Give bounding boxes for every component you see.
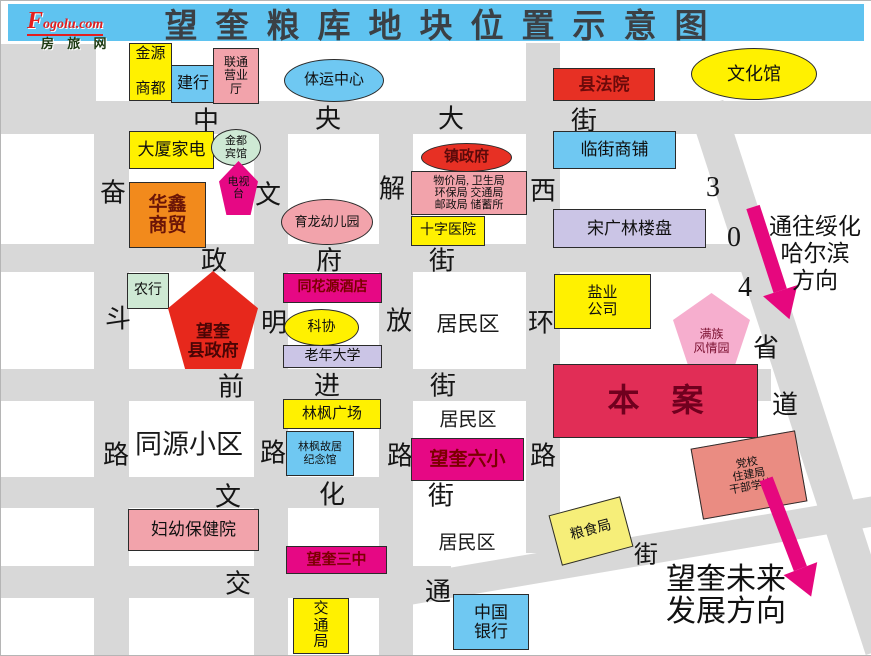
block-liantong-yingyeting: 联通营业厅 [213,48,259,104]
street-name-char: 解 [379,169,405,206]
block-label: 同花源酒店 [298,280,368,296]
block-label: 公司 [587,302,617,319]
street-name-char: 化 [319,475,345,512]
page-title: 望奎粮库地块位置示意图 [147,0,726,47]
street-name-char: 3 [706,172,720,204]
block-label: 金都 [225,135,247,147]
block-label: 望奎 [196,322,230,341]
map-canvas: 望奎粮库地块位置示意图 Fogolu.com 房 旅 网 中央大街政府街前进街文… [0,0,871,656]
annotation-line: 哈尔滨 [759,240,871,267]
block-label: 联通 [224,56,248,69]
block-wenhuaguan: 文化馆 [691,48,817,100]
block-label: 满族 [699,328,723,341]
block-label: 中国 [474,603,508,622]
block-wangkui-xianzhengfu: 望奎县政府 [168,271,258,369]
block-zhongguo-yinhang: 中国银行 [453,594,529,650]
street-name-char: 路 [103,435,129,472]
block-label: 局 [313,634,328,651]
block-wangkui-sanzhong: 望奎三中 [286,546,387,574]
block-kexie: 科协 [284,309,359,346]
block-label: 县政府 [188,341,239,360]
area-juminqu-3: 居民区 [438,528,495,555]
fogolu-brand: Fogolu.com [27,9,103,36]
block-label: 建行 [177,75,209,93]
block-label: 风情园 [693,342,729,355]
annotation-line: 方向 [759,267,871,294]
block-dianshitai: 电视台 [219,161,258,215]
block-label: 望奎三中 [306,552,366,569]
annotation-line: 望奎未来 [646,564,806,596]
street-name-char: 环 [528,303,554,340]
block-label: 商贸 [148,215,186,236]
street-northwest-corner-patch [1,44,96,101]
block-label: 十字医院 [420,223,476,239]
block-linfeng-guju-jinianguan: 林枫故居纪念馆 [286,431,354,476]
block-label: 大厦家电 [138,140,206,159]
block-jianhang: 建行 [171,65,215,103]
annotation-wangkui-future: 望奎未来发展方向 [646,564,806,628]
block-label: 环保局 交通局 [435,187,504,199]
title-bar: 望奎粮库地块位置示意图 [8,4,864,41]
block-linjie-shangpu: 临街商铺 [553,131,676,169]
area-juminqu-2: 居民区 [439,405,496,432]
block-label: 营业 [224,69,248,82]
street-name-char: 文 [215,477,241,514]
block-label: 县法院 [579,75,630,94]
block-label: 妇幼保健院 [151,520,236,539]
street-name-char: 央 [315,99,341,136]
block-label: 农行 [134,283,162,299]
street-name-char: 西 [530,171,556,208]
block-linfeng-guangchang: 林枫广场 [283,399,381,429]
block-label: 盐业 [587,285,617,302]
fogolu-logo: Fogolu.com 房 旅 网 [27,9,112,50]
block-label: 邮政局 储蓄所 [435,199,504,211]
block-label: 镇政府 [444,149,489,166]
block-fuyou-baojianyuan: 妇幼保健院 [128,509,259,551]
block-yanye-gongsi: 盐业公司 [554,274,651,329]
street-zhongyang-dajie [1,101,871,134]
street-name-char: 明 [261,303,287,340]
block-shizi-yiyuan: 十字医院 [411,216,485,246]
area-tongyuan-xiaoqu: 同源小区 [135,423,243,462]
block-benan: 本 案 [553,364,758,438]
street-name-char: 街 [429,241,455,278]
fogolu-chinese-name: 房 旅 网 [41,37,112,50]
street-name-char: 省 [753,328,779,365]
block-label: 物价局, 卫生局 [433,175,505,187]
block-label: 厅 [230,83,242,96]
block-jindu-binguan: 金都宾馆 [211,129,261,166]
area-juminqu-1: 居民区 [437,308,500,338]
block-label: 金源 [135,46,165,63]
street-name-char: 路 [387,436,413,473]
street-name-char: 街 [428,476,454,513]
block-laonian-daxue: 老年大学 [283,345,382,368]
block-huaxin-shangmao: 华鑫商贸 [129,182,206,248]
street-name-char: 奋 [100,173,126,210]
block-songguanglin-loupan: 宋广林楼盘 [553,209,706,248]
street-name-char: 前 [218,367,244,404]
street-name-char: 放 [386,301,412,338]
street-name-char: 交 [225,564,251,601]
street-name-char: 府 [316,241,342,278]
block-label: 林枫广场 [302,406,362,423]
block-dasha-jiadian: 大厦家电 [129,131,214,169]
block-zhen-zhengfu: 镇政府 [421,143,512,172]
block-wangkui-liuxiao: 望奎六小 [411,438,524,481]
street-name-char: 进 [314,366,340,403]
street-name-char: 路 [260,433,286,470]
block-label: 望奎六小 [429,449,505,470]
block-jiaotongju: 交通局 [293,598,349,654]
block-label: 粮食局 [569,518,614,544]
block-label: 商都 [135,81,165,98]
street-name-char: 文 [255,175,281,212]
block-label: 通 [313,618,328,635]
fogolu-brand-rest: ogolu.com [43,17,103,32]
block-label: 林枫故居 [298,441,342,453]
block-label: 体运中心 [304,72,364,89]
block-label: 纪念馆 [304,454,337,466]
block-label: 临街商铺 [581,140,649,159]
street-name-char: 街 [430,366,456,403]
annotation-to-suihua-harbin: 通往绥化哈尔滨方向 [759,213,871,294]
block-xian-fayuan: 县法院 [553,68,655,101]
block-nonghang: 农行 [127,273,169,309]
block-label: 华鑫 [148,194,186,215]
block-label: 宾馆 [225,148,247,160]
street-name-char: 0 [727,222,741,254]
block-tiyun-zhongxin: 体运中心 [284,59,384,102]
block-bureaus-block: 物价局, 卫生局环保局 交通局邮政局 储蓄所 [411,171,527,215]
street-name-char: 道 [772,385,798,422]
street-name-char: 路 [530,436,556,473]
annotation-line: 发展方向 [646,596,806,628]
block-yulong-youeryuan: 育龙幼儿园 [281,199,373,245]
block-label: 宋广林楼盘 [587,219,672,238]
street-name-char: 大 [438,99,464,136]
block-label: 本 案 [607,383,703,419]
block-tonghuayuan-jiudian: 同花源酒店 [283,273,382,303]
block-label: 银行 [474,622,508,641]
block-label: 电视 [228,176,250,188]
block-jinyuan-shangdu: 金源商都 [129,43,172,101]
block-label: 育龙幼儿园 [294,215,359,230]
street-wenhua-jie [1,477,413,508]
block-label: 老年大学 [305,349,361,365]
fogolu-brand-initial: F [27,8,43,34]
block-label: 文化馆 [727,64,781,84]
block-label: 交 [313,601,328,618]
block-label: 台 [233,188,244,200]
block-label: 科协 [308,320,336,336]
street-name-char: 4 [738,272,752,304]
annotation-line: 通往绥化 [759,213,871,240]
street-name-char: 通 [425,572,451,609]
